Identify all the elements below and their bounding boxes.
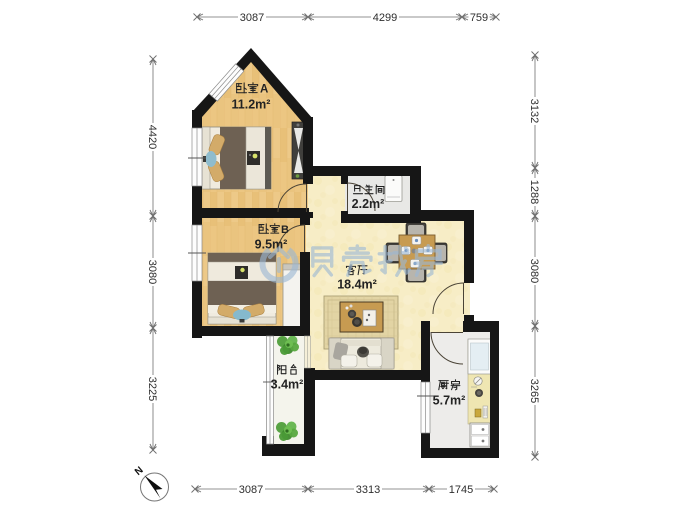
svg-text:1288: 1288 xyxy=(528,180,540,204)
svg-text:4420: 4420 xyxy=(146,125,158,149)
svg-text:5.7m²: 5.7m² xyxy=(433,394,466,408)
svg-text:3087: 3087 xyxy=(240,12,264,24)
svg-text:11.2m²: 11.2m² xyxy=(232,98,271,112)
svg-text:B: B xyxy=(281,224,289,236)
svg-text:18.4m²: 18.4m² xyxy=(337,278,377,292)
svg-text:3087: 3087 xyxy=(239,484,263,496)
svg-text:1745: 1745 xyxy=(449,484,473,496)
svg-text:3080: 3080 xyxy=(146,260,158,284)
svg-text:3080: 3080 xyxy=(528,259,540,283)
svg-text:A: A xyxy=(260,84,268,96)
svg-text:4299: 4299 xyxy=(373,12,397,24)
svg-text:3225: 3225 xyxy=(146,377,158,401)
svg-text:2.2m²: 2.2m² xyxy=(352,197,385,211)
svg-text:3132: 3132 xyxy=(528,99,540,123)
svg-text:3265: 3265 xyxy=(528,379,540,403)
svg-text:3.4m²: 3.4m² xyxy=(271,378,304,392)
svg-text:3313: 3313 xyxy=(356,484,380,496)
svg-text:759: 759 xyxy=(470,12,488,24)
